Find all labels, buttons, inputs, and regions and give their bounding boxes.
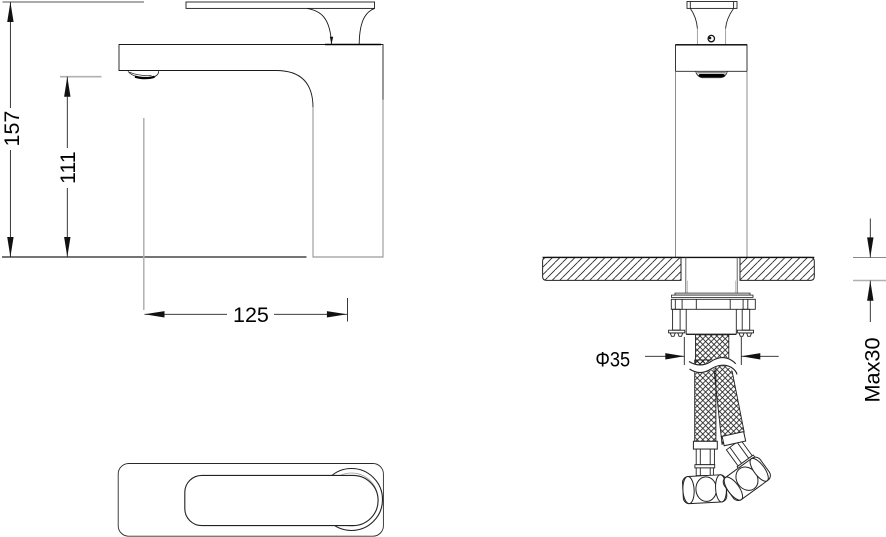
svg-text:Φ35: Φ35 bbox=[595, 347, 630, 371]
svg-text:111: 111 bbox=[56, 151, 80, 184]
svg-text:125: 125 bbox=[233, 303, 269, 327]
svg-text:157: 157 bbox=[0, 111, 24, 147]
svg-text:Max30: Max30 bbox=[861, 337, 885, 402]
